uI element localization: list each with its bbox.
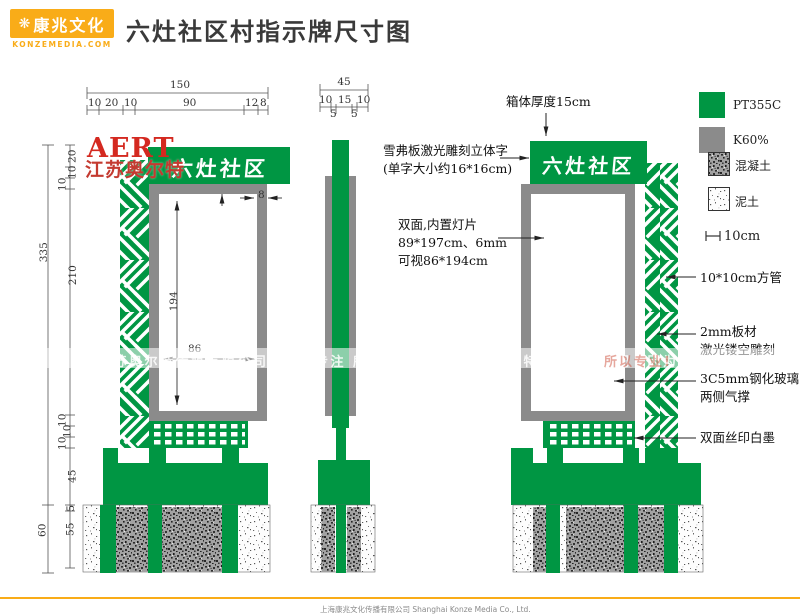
legend-swatch-soil <box>708 187 730 211</box>
dim-front-hseg: 10 <box>57 178 68 191</box>
logo-name-en: KONZEMEDIA.COM <box>10 40 114 49</box>
watermark-band: 江苏奥尔特传媒有限公司 因为专注 所以专业 江苏奥尔特传媒有限公司 因为专注 所… <box>0 348 800 368</box>
dim-front-hseg: 10 <box>57 437 68 450</box>
dim-front-hseg: 210 <box>68 265 79 285</box>
side-green-core <box>332 140 349 428</box>
dim-front-hseg: 45 <box>67 470 78 483</box>
dim-front-seg: 10 <box>88 98 101 109</box>
dim-side-seg: 10 <box>357 95 370 106</box>
dim-front-seg: 10 <box>124 98 137 109</box>
side-base-block <box>318 460 370 505</box>
annotation-foam-letters-1: 雪弗板激光雕刻立体字 <box>383 143 508 158</box>
logo-flower-icon: ❋ <box>19 17 31 31</box>
front-base-block <box>103 463 268 505</box>
sign-drawing <box>0 0 800 615</box>
annotation-light-panel-2: 89*197cm、6mm <box>398 235 507 250</box>
dim-front-seg: 90 <box>183 98 196 109</box>
dim-front-total-width: 150 <box>165 80 195 91</box>
scale-bar <box>706 231 720 241</box>
dim-front-seg: 20 <box>105 98 118 109</box>
legend-label-green: PT355C <box>733 98 781 112</box>
watermark-band-fragment: 所以专业! <box>604 351 672 368</box>
dim-front-hseg: 10 <box>67 166 78 179</box>
legend-scale-label: 10cm <box>724 229 760 244</box>
legend-label-soil: 泥土 <box>735 193 759 210</box>
annotation-light-panel-3: 可视86*194cm <box>398 253 488 268</box>
annotation-silk-print: 双面丝印白墨 <box>700 430 775 445</box>
dim-frame-width: 8 <box>258 190 265 201</box>
annotation-glass-2: 两侧气撑 <box>700 389 750 404</box>
dim-side-subseg: 5 <box>330 109 337 120</box>
annotation-glass-1: 3C5mm钢化玻璃 <box>700 371 799 386</box>
dim-panel-height: 194 <box>169 291 180 311</box>
dimension-drawing-page: ❋ 康兆文化 KONZEMEDIA.COM 六灶社区村指示牌尺寸图 六灶社区 六… <box>0 0 800 615</box>
dim-side-seg: 10 <box>319 95 332 106</box>
logo-name-cn: 康兆文化 <box>33 12 105 36</box>
legend-label-concrete: 混凝土 <box>735 157 771 174</box>
back-lattice-strip <box>645 163 678 463</box>
legend-swatch-green <box>699 92 725 118</box>
dim-front-hseg: 20 <box>67 150 78 163</box>
back-base-block <box>511 463 701 505</box>
annotation-box-thickness: 箱体厚度15cm <box>506 94 591 109</box>
annotation-laser-cut-1: 2mm板材 <box>700 324 757 339</box>
legend-label-gray: K60% <box>733 133 769 147</box>
dim-side-seg: 15 <box>338 95 351 106</box>
dim-front-hseg: 55 <box>65 523 76 536</box>
legend-swatch-gray <box>699 127 725 153</box>
dim-side-subseg: 5 <box>351 109 358 120</box>
front-lattice-strip <box>120 160 149 448</box>
watermark-brand-en: AERT <box>87 135 175 162</box>
legend-swatch-concrete <box>708 152 730 176</box>
dim-side-total-width: 45 <box>334 77 354 88</box>
annotation-square-tube: 10*10cm方管 <box>700 270 782 285</box>
page-title: 六灶社区村指示牌尺寸图 <box>126 12 412 47</box>
dim-front-total-height: 335 <box>39 242 50 262</box>
watermark-brand-cn: 江苏奥尔特 <box>85 161 185 180</box>
annotation-light-panel-1: 双面,内置灯片 <box>398 217 477 232</box>
logo: ❋ 康兆文化 <box>10 9 114 38</box>
dim-front-seg: 8 <box>260 98 267 109</box>
back-lightbox-panel <box>531 194 625 411</box>
back-sign-text: 六灶社区 <box>531 150 647 179</box>
front-concrete <box>116 507 224 572</box>
annotation-foam-letters-2: (单字大小约16*16cm) <box>383 161 512 176</box>
dim-front-seg: 12 <box>245 98 258 109</box>
dim-front-underground: 60 <box>37 524 48 537</box>
dim-front-hseg: 5 <box>66 505 77 512</box>
